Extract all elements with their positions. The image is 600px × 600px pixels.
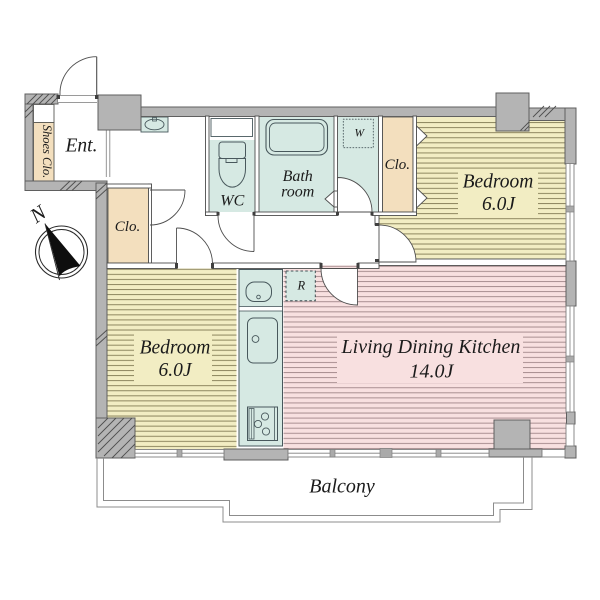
svg-text:14.0J: 14.0J: [410, 361, 455, 383]
svg-text:6.0J: 6.0J: [158, 360, 192, 381]
svg-text:Clo.: Clo.: [115, 219, 140, 235]
svg-text:WC: WC: [220, 193, 244, 210]
svg-text:Living Dining Kitchen: Living Dining Kitchen: [341, 336, 521, 358]
svg-text:Bedroom: Bedroom: [463, 172, 534, 193]
svg-text:R: R: [296, 278, 305, 292]
svg-text:room: room: [281, 184, 314, 201]
svg-text:Bath: Bath: [283, 168, 313, 185]
svg-text:Bedroom: Bedroom: [140, 338, 211, 359]
svg-text:Shoes Clo.: Shoes Clo.: [40, 125, 54, 178]
svg-text:Clo.: Clo.: [385, 157, 410, 173]
svg-text:W: W: [355, 128, 366, 140]
svg-text:6.0J: 6.0J: [482, 194, 516, 215]
svg-text:Balcony: Balcony: [309, 476, 375, 498]
svg-text:Ent.: Ent.: [65, 136, 98, 157]
